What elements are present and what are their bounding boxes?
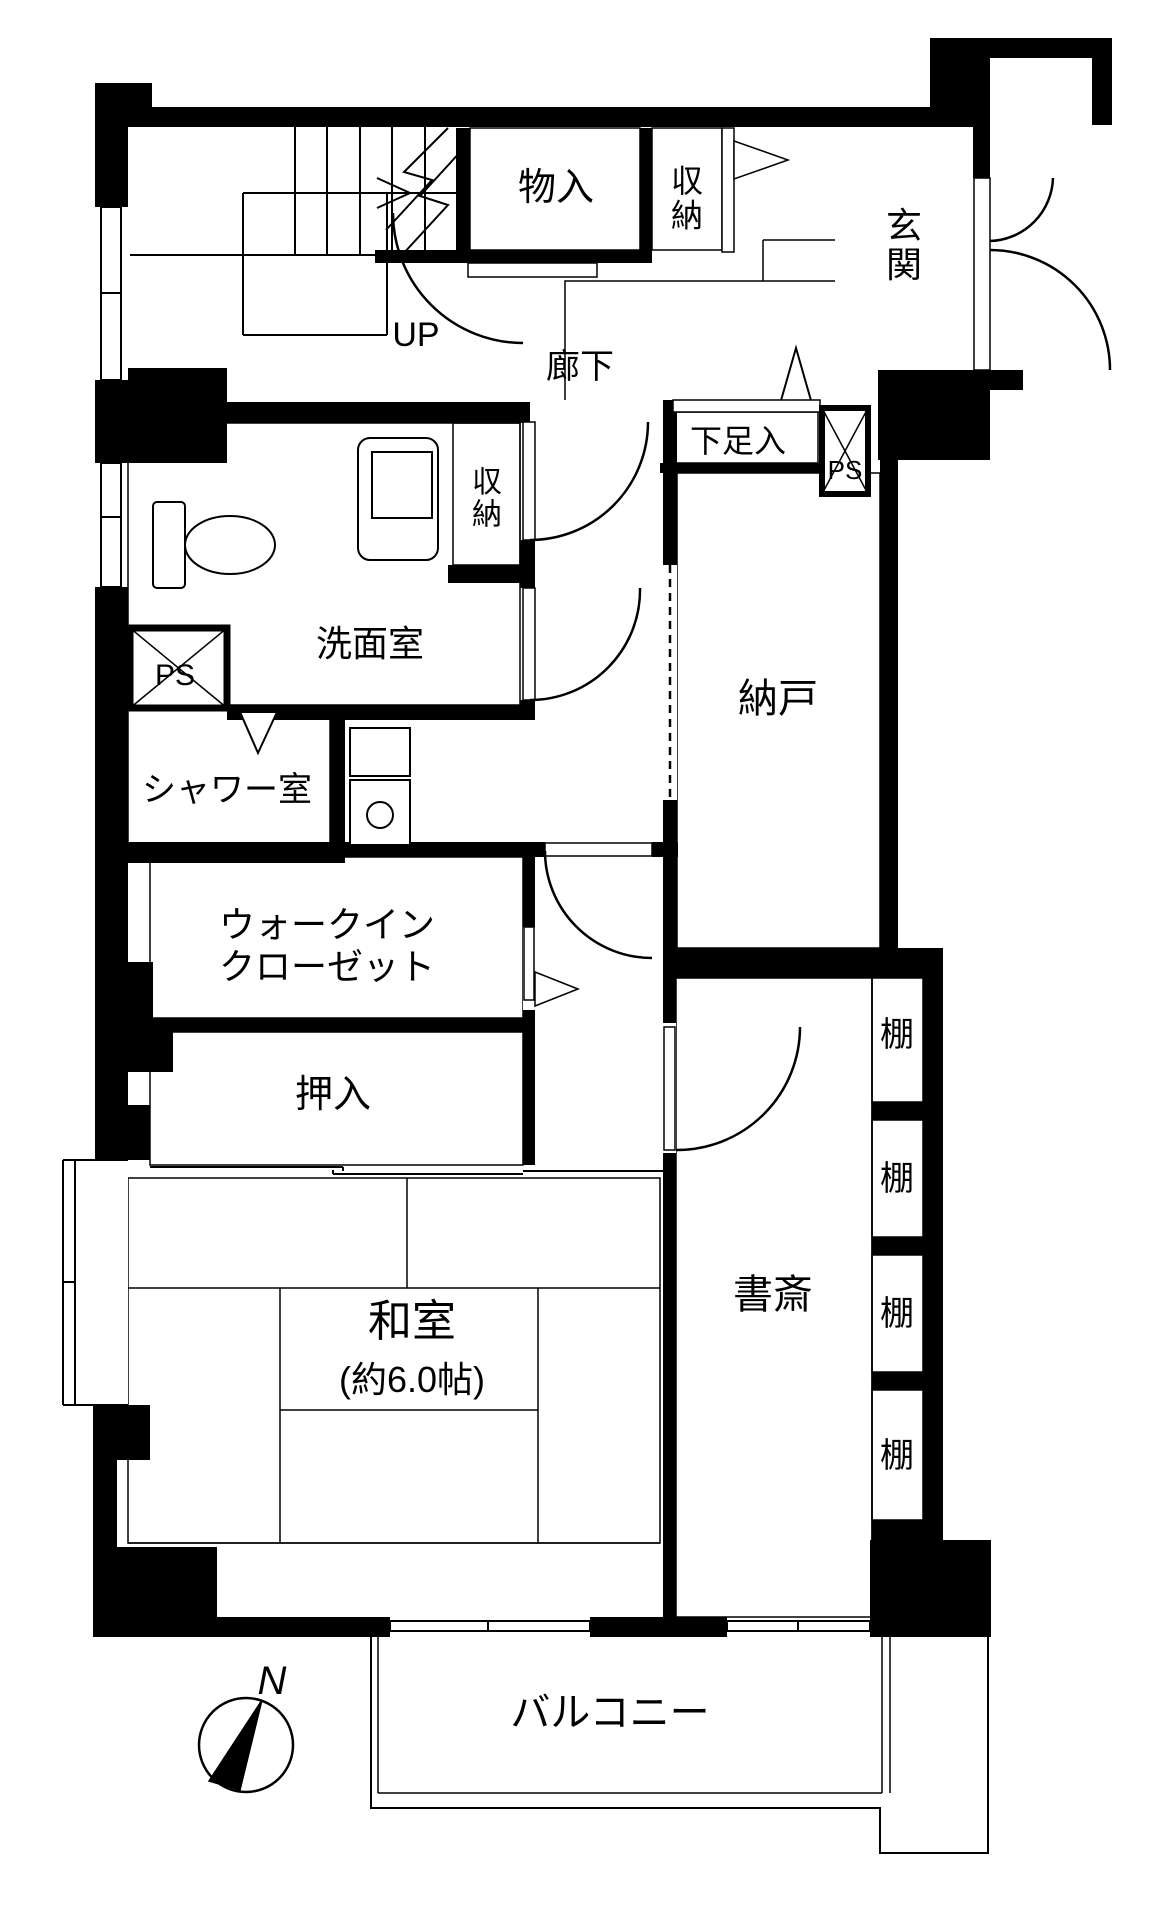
label-shelf-2: 棚 (880, 1160, 914, 1198)
wall-top-right-column (1092, 58, 1112, 125)
wall-top-right-band (930, 38, 1112, 58)
doors (150, 128, 1110, 1174)
floor-plan-page: N 物入 収納 玄関 UP 廊下 下足入 PS 収納 洗面室 PS 納戸 シャワ… (0, 0, 1160, 1920)
wall-bottom-right-block (870, 1540, 991, 1637)
oshiire-fusuma-sliding-doors (150, 1167, 663, 1174)
label-shelf-3: 棚 (880, 1295, 914, 1333)
wall-nando-top (660, 463, 822, 473)
label-balcony: バルコニー (510, 1691, 709, 1735)
shuno-top-door-leaf (722, 128, 734, 252)
wall-shelf-divider-1 (872, 1102, 923, 1120)
wall-senmen-right-1 (520, 540, 535, 588)
wall-wic-bottom (150, 1018, 523, 1032)
wall-monoire-divider (640, 128, 652, 263)
wall-wic-right-1 (523, 857, 535, 927)
wall-shelf-divider-3 (872, 1372, 923, 1390)
label-up: UP (392, 316, 439, 354)
label-washitsu-size: (約6.0帖) (339, 1359, 485, 1400)
balcony-outline (371, 1637, 988, 1853)
wall-nando-left-1 (663, 400, 677, 565)
label-shower: シャワー室 (142, 771, 312, 809)
label-shuno-top: 収納 (671, 163, 703, 234)
tatami-mat-lines (128, 978, 872, 1543)
wall-right-mid (880, 460, 898, 952)
wall-right-step-arm (990, 370, 1023, 390)
label-roka: 廊下 (546, 348, 614, 386)
label-shuno-senmen: 収納 (472, 466, 502, 531)
wall-right-lower (923, 978, 943, 1540)
toilet-tank-icon (153, 502, 185, 588)
balcony (371, 1637, 988, 1853)
wall-nando-bottom (663, 948, 943, 978)
wall-bottom-1 (205, 1617, 390, 1637)
wall-wic-right-2 (523, 1010, 535, 1165)
label-nando: 納戸 (738, 677, 818, 721)
label-washitsu: 和室 (368, 1297, 456, 1346)
south-hall-door-leaf (545, 843, 652, 856)
wall-monoire-bottom (375, 250, 652, 263)
wall-nando-left-2 (663, 800, 677, 948)
wic-door-leaf (524, 927, 534, 1000)
wic-folding-door-icon (535, 972, 578, 1006)
entrance-door-arc-large (990, 250, 1110, 370)
compass-north-label: N (258, 1659, 287, 1703)
staircase (130, 127, 462, 335)
wall-bottom-left-block (93, 1547, 217, 1637)
shosai-door-arc (676, 1027, 800, 1150)
wall-shower-right (330, 708, 345, 845)
sink-drain-icon (367, 802, 393, 828)
wall-left-step-1 (95, 962, 153, 1020)
shuno-top-folding-door-icon (734, 141, 788, 179)
hall-door-leaf (468, 263, 597, 277)
corridor-door-arc (530, 588, 640, 700)
label-shelf-1: 棚 (880, 1016, 914, 1054)
wall-shosai-left-1 (663, 978, 676, 1023)
corridor-door-leaf (523, 588, 535, 700)
shosai-door-leaf (664, 1027, 675, 1150)
washing-machine-drum-icon (372, 452, 432, 518)
counter-unit-icon (350, 728, 410, 776)
wall-left-2 (95, 380, 128, 463)
wall-top (110, 107, 930, 127)
label-wic-line2: クローゼット (219, 946, 435, 987)
label-oshiire: 押入 (295, 1074, 371, 1116)
wall-left-4 (95, 708, 128, 962)
wall-shelf-divider-2 (872, 1237, 923, 1255)
toilet-bowl-icon (185, 516, 275, 574)
senmen-door-leaf (523, 422, 535, 540)
wall-senmen-top (130, 402, 530, 423)
shower-head-icon (240, 712, 277, 753)
floor-plan-drawing: N 物入 収納 玄関 UP 廊下 下足入 PS 収納 洗面室 PS 納戸 シャワ… (0, 0, 1160, 1920)
compass-needle-icon (209, 1700, 262, 1790)
wall-right-step-block (878, 370, 990, 460)
entrance-door-arc-small (990, 178, 1053, 241)
walls (93, 38, 1112, 1637)
label-genkan: 玄関 (886, 205, 922, 285)
label-senmenshitsu: 洗面室 (316, 623, 424, 664)
label-shitasokuire: 下足入 (690, 423, 786, 459)
wall-shelf-bottom (872, 1520, 923, 1540)
label-ps-lower: PS (155, 659, 195, 692)
compass: N (199, 1659, 293, 1792)
entrance-step-arrow-icon (780, 348, 812, 404)
label-monoire: 物入 (518, 167, 594, 209)
wall-bottom-2 (590, 1617, 727, 1637)
label-shelf-4: 棚 (880, 1437, 914, 1475)
label-ps-upper: PS (828, 455, 863, 485)
wall-left-3 (95, 587, 128, 708)
wall-bay-bottom-cap (93, 1405, 150, 1460)
label-shosai: 書斎 (733, 1273, 813, 1317)
entrance-door-leaf (974, 178, 990, 370)
wall-bay-top-cap (95, 1105, 150, 1160)
senmen-door-arc (530, 422, 648, 540)
wall-right-above-door (973, 127, 990, 178)
wall-monoire-left (456, 128, 470, 250)
wall-left-6 (93, 1460, 117, 1547)
wall-shuno-senmen-bottom (448, 565, 520, 583)
shitasokuire-door-leaf (673, 400, 820, 412)
wall-left-1 (95, 127, 128, 207)
label-wic-line1: ウォークイン (219, 904, 435, 945)
wall-shosai-left-2 (663, 1153, 676, 1617)
wall-wic-top (128, 842, 545, 857)
south-hall-door-arc (545, 851, 652, 958)
senmen-window-bg (99, 463, 123, 587)
